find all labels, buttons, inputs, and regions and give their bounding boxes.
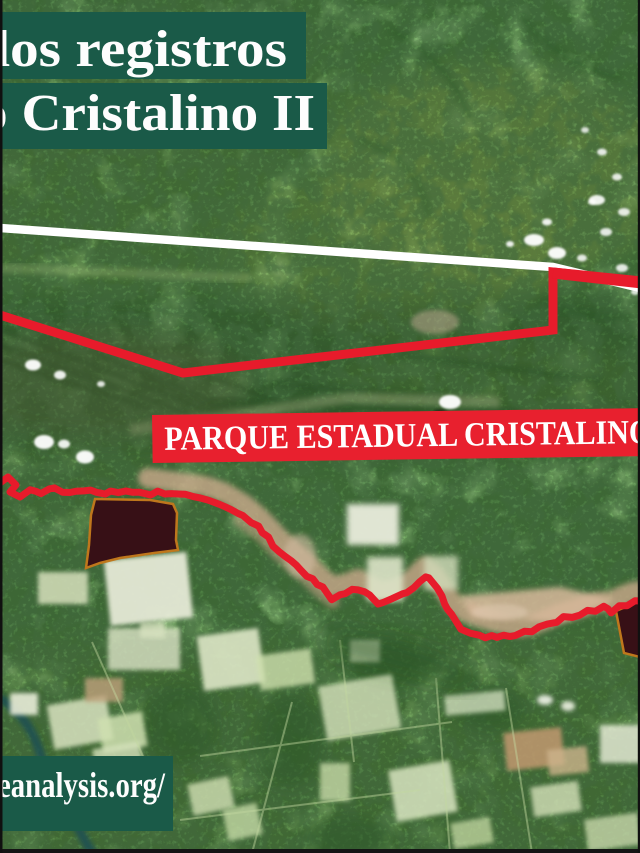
svg-text:PARQUE ESTADUAL CRISTALINO: PARQUE ESTADUAL CRISTALINO	[164, 414, 640, 458]
svg-text:dos registros: dos registros	[0, 21, 287, 78]
svg-text:o Cristalino II: o Cristalino II	[0, 85, 315, 142]
svg-text:eanalysis.org/: eanalysis.org/	[0, 765, 166, 805]
